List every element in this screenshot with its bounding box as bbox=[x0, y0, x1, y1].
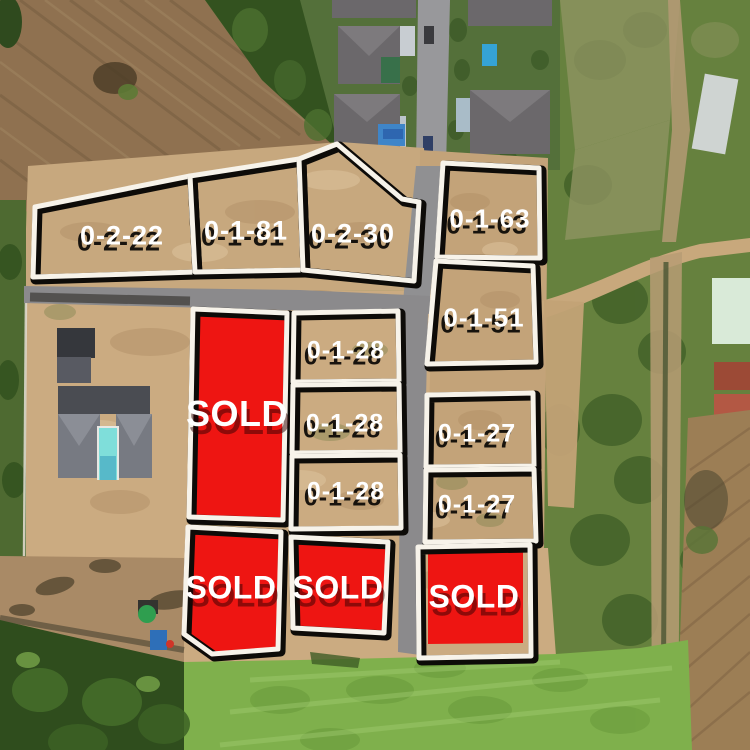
sold-fill bbox=[428, 551, 523, 644]
plot-0-1-81 bbox=[190, 159, 306, 275]
plot-sold-4 bbox=[418, 545, 534, 661]
plot-sold-2 bbox=[184, 527, 284, 657]
plot-0-1-27-b bbox=[425, 469, 539, 545]
plot-0-1-28-a bbox=[293, 311, 402, 385]
plot-0-1-28-b bbox=[292, 384, 403, 456]
plot-0-1-63 bbox=[437, 163, 543, 261]
plot-sold-3 bbox=[291, 537, 391, 636]
plot-0-2-22 bbox=[33, 176, 198, 280]
plot-0-1-27-a bbox=[426, 393, 537, 470]
aerial-photo-frame: 0-2-220-1-810-2-300-1-630-1-51SOLD0-1-28… bbox=[0, 0, 750, 750]
plot-0-1-51 bbox=[427, 261, 539, 367]
plot-0-1-28-c bbox=[291, 455, 404, 532]
plot-sold-1 bbox=[189, 309, 290, 523]
plot-overlay bbox=[0, 0, 750, 750]
plot-0-2-30 bbox=[299, 144, 422, 284]
